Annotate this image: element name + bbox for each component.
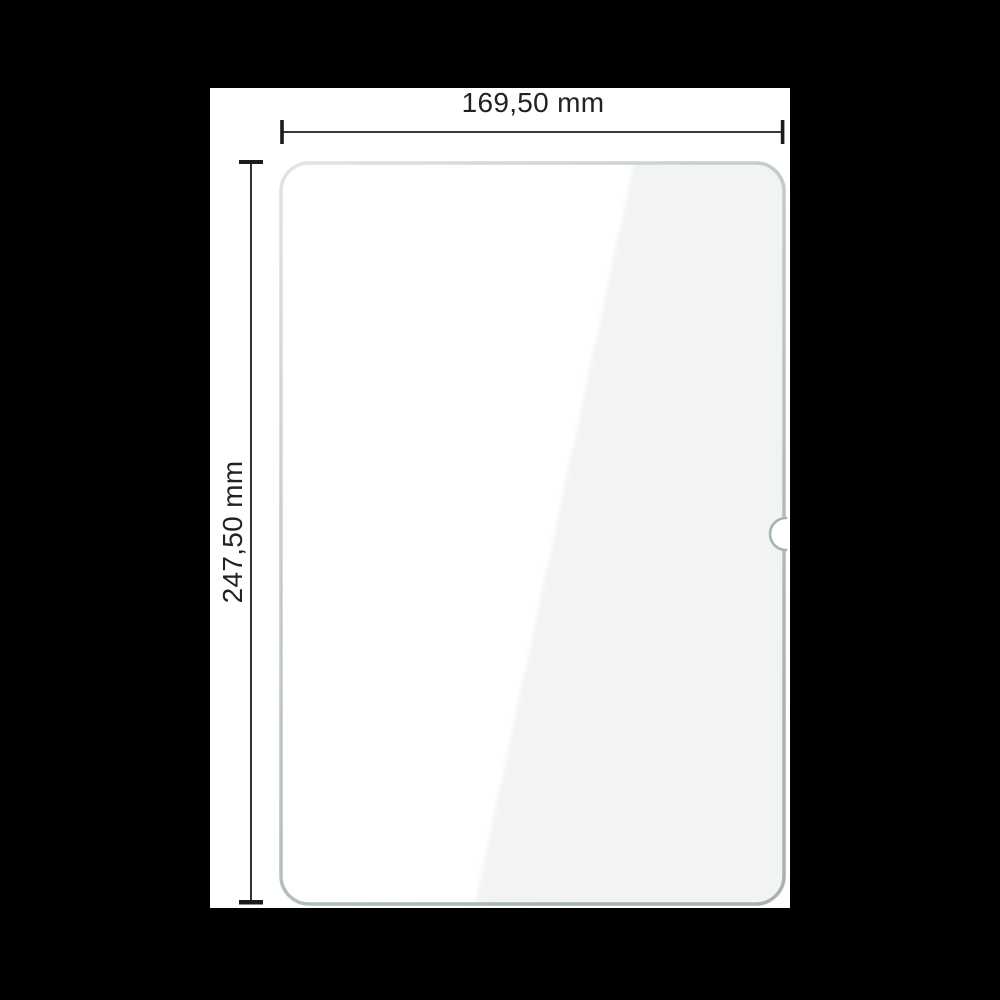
- height-dimension-tick-top: [239, 160, 263, 164]
- product-dimension-diagram: 169,50 mm 247,50 mm: [0, 0, 1000, 1000]
- camera-notch: [770, 518, 789, 550]
- image-canvas: 169,50 mm 247,50 mm: [210, 88, 790, 908]
- height-dimension-label: 247,50 mm: [219, 461, 247, 604]
- width-dimension-label: 169,50 mm: [462, 89, 605, 117]
- width-dimension-tick-left: [280, 120, 284, 144]
- width-dimension-line: [280, 120, 784, 144]
- glass-protector: [210, 88, 790, 908]
- width-dimension-tick-right: [781, 120, 785, 144]
- height-dimension-tick-bottom: [239, 900, 263, 905]
